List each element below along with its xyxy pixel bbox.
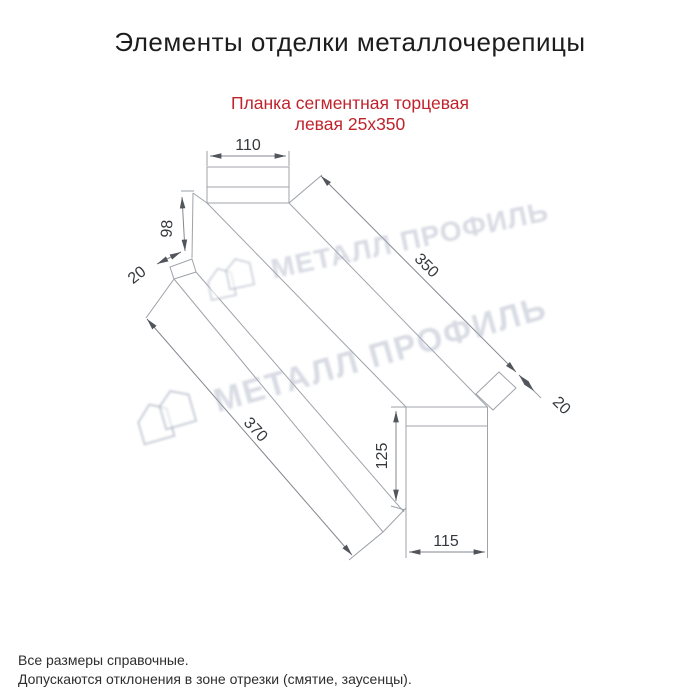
dim-height-right-label: 125 [374, 443, 391, 470]
page: 110 98 20 350 370 20 125 115 МЕТАЛЛ ПРОФ… [0, 0, 700, 700]
dim-width-top-label: 110 [235, 137, 261, 154]
dim-height-left-label: 98 [159, 219, 177, 238]
footer-note-line1: Все размеры справочные. [18, 651, 412, 670]
dim-fold-left-label: 20 [125, 263, 150, 287]
footer-note-line2: Допускаются отклонения в зоне отрезки (с… [18, 670, 412, 689]
footer-notes: Все размеры справочные. Допускаются откл… [18, 651, 412, 689]
extension-lines [146, 151, 541, 560]
product-subtitle: Планка сегментная торцевая левая 25x350 [0, 93, 700, 134]
product-subtitle-line2: левая 25x350 [0, 114, 700, 135]
profile-outline [170, 167, 516, 558]
product-subtitle-line1: Планка сегментная торцевая [0, 93, 700, 114]
dim-fold-right-label: 20 [549, 394, 574, 419]
dimension-labels: 110 98 20 350 370 20 125 115 [125, 137, 574, 550]
page-title: Элементы отделки металлочерепицы [0, 26, 700, 58]
dim-width-bottom-label: 115 [433, 533, 459, 550]
dim-length-top-label: 350 [411, 250, 442, 281]
dim-length-bottom-label: 370 [240, 414, 271, 445]
dimension-lines [147, 156, 534, 555]
